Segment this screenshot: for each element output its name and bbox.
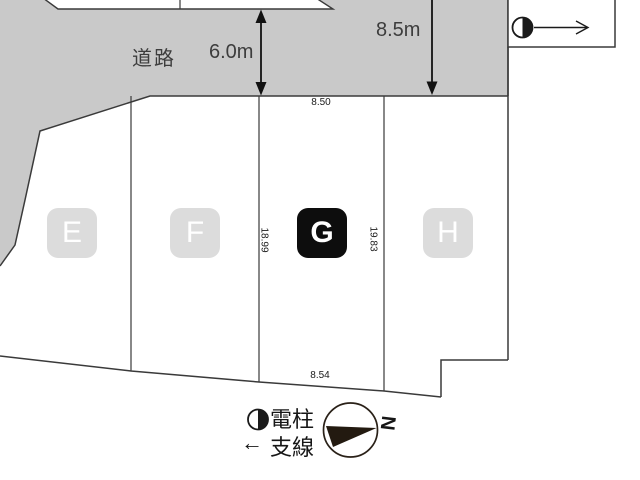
north-label: N [375, 414, 400, 431]
plot-g-rear-width: 8.54 [310, 370, 329, 381]
road-width-label: 6.0m [209, 41, 253, 64]
site-rear-step [441, 360, 508, 397]
site-plan: 道路 6.0m 8.5m E F G H 8.50 18.99 19.83 8.… [0, 0, 640, 480]
plot-g-front-width: 8.50 [311, 97, 330, 108]
site-rear-boundary [0, 356, 441, 397]
guy-wire-arrow-icon: ← [241, 430, 263, 456]
legend-guy-label: 支線 [270, 430, 314, 462]
road-setback-label: 8.5m [376, 19, 420, 42]
road-label: 道路 [132, 42, 176, 71]
plot-badge-h: H [423, 208, 473, 258]
legend-pole-icon-fill [258, 410, 268, 430]
cross-road-plot [43, 0, 333, 9]
plot-badge-g: G [297, 208, 347, 258]
plot-g-right-depth: 19.83 [368, 226, 379, 251]
plot-g-left-depth: 18.99 [259, 227, 270, 252]
plot-badge-e: E [47, 208, 97, 258]
plot-badge-f: F [170, 208, 220, 258]
